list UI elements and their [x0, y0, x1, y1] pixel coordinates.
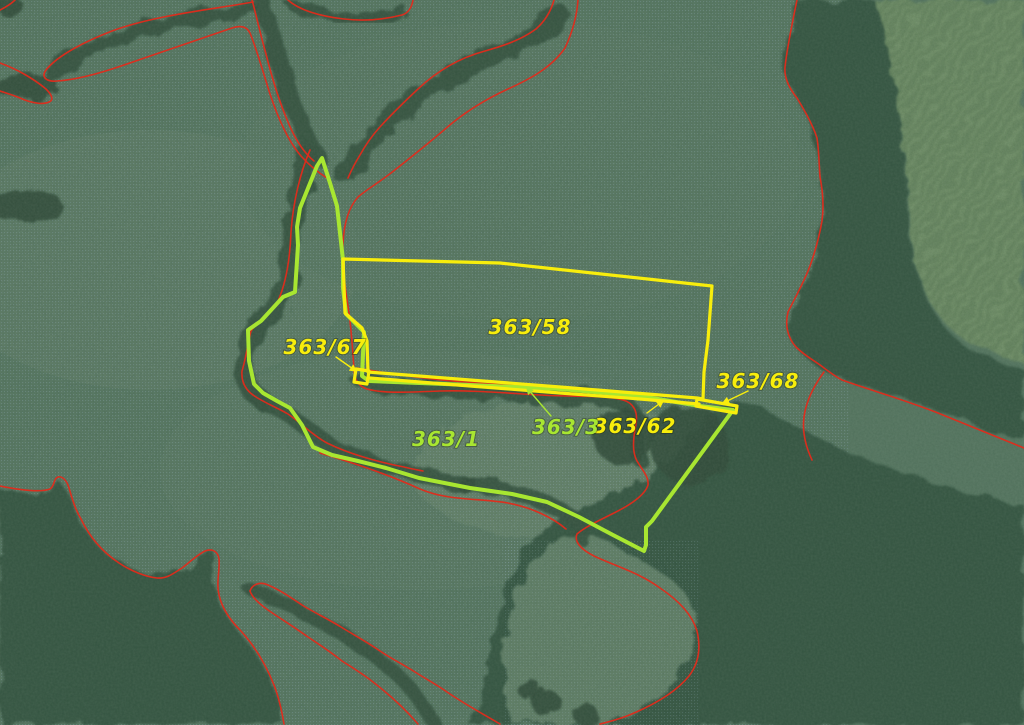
parcel-label-363-58: 363/58 [489, 315, 572, 339]
map-canvas[interactable]: 363/58 363/67 363/68 363/62 363/3 363/1 [0, 0, 1024, 725]
orthophoto-layer [0, 0, 1024, 725]
parcel-label-363-3: 363/3 [532, 415, 600, 439]
parcel-label-363-67: 363/67 [284, 335, 367, 359]
noise-overlay-light [0, 0, 1024, 725]
map-viewport[interactable]: 363/58 363/67 363/68 363/62 363/3 363/1 [0, 0, 1024, 725]
parcel-label-363-68: 363/68 [717, 369, 800, 393]
parcel-label-363-1: 363/1 [412, 427, 480, 451]
parcel-label-363-62: 363/62 [594, 414, 677, 438]
